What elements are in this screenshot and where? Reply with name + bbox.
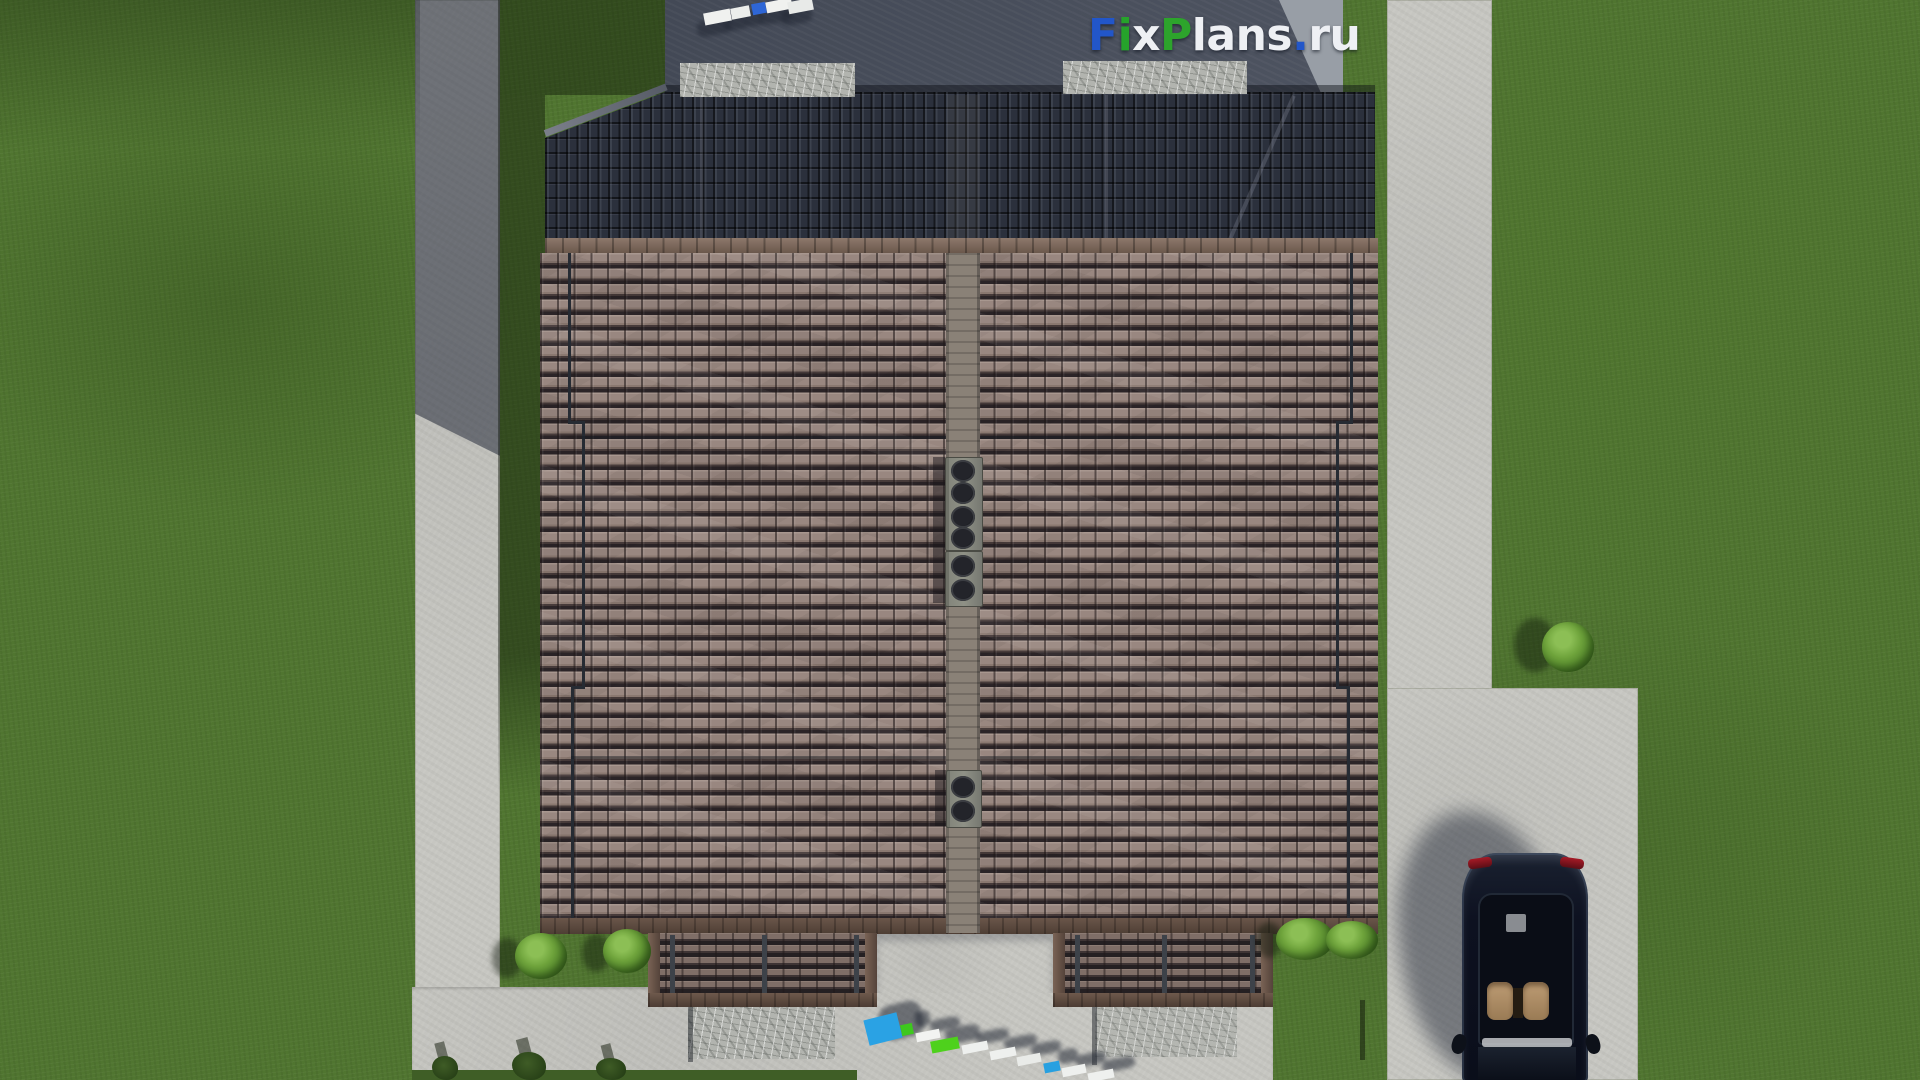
roof-vent-line-left [700, 95, 703, 238]
chimney-vent [951, 800, 975, 822]
chimney-shadow-1 [933, 457, 945, 603]
watermark-letter: x [1132, 10, 1160, 61]
watermark-letter: ru [1308, 10, 1360, 61]
porch-right-valley-2 [1162, 935, 1167, 993]
house-shadow-on-lawn [0, 0, 420, 150]
car-panoramic-roof [1478, 893, 1574, 1045]
bush [1326, 921, 1378, 959]
car-dashboard [1482, 1038, 1572, 1047]
house-shadow-strip-top [498, 0, 670, 95]
porch-right-fascia-b [1053, 993, 1273, 1007]
entrance-pad [877, 933, 1053, 993]
house-shadow-strip-left [498, 95, 545, 795]
porch-left-valley-3 [854, 935, 859, 993]
car-console [1506, 914, 1526, 932]
chimney-block [945, 457, 983, 551]
downspout-shadow-3 [1360, 1000, 1365, 1060]
watermark-letter: i [1118, 10, 1133, 61]
car-seat-gap [1513, 988, 1523, 1018]
chimney-vent [951, 776, 975, 798]
bush-small-dark [596, 1058, 626, 1080]
granite-step-left [688, 1007, 835, 1059]
bush-small-dark [432, 1056, 458, 1080]
bush-small-dark [512, 1052, 546, 1080]
grass-sliver-bottom [412, 1070, 857, 1080]
roof-vent-line-right [1105, 95, 1108, 238]
granite-step-right [1095, 1007, 1237, 1057]
granite-cap-right [1063, 61, 1247, 94]
porch-right-valley-1 [1075, 935, 1080, 993]
roof-guard-right-2 [1336, 424, 1339, 688]
watermark-letter: . [1292, 10, 1308, 61]
car-seat-left [1487, 982, 1513, 1020]
roof-guard-left-2 [582, 424, 585, 688]
porch-left-valley-1 [670, 935, 675, 993]
roof-guard-left-1 [568, 253, 571, 424]
watermark-letter: F [1088, 10, 1118, 61]
chimney-vent [951, 460, 975, 482]
chimney-shadow-2 [935, 770, 946, 826]
porch-left-fascia-b [648, 993, 877, 1007]
porch-right-valley-3 [1250, 935, 1255, 993]
chimney-vent [951, 527, 975, 549]
chimney-vent [951, 506, 975, 528]
chimney-block [946, 770, 982, 828]
roof-guard-right-3 [1347, 688, 1350, 918]
roof-guard-left-3 [571, 688, 574, 918]
path-right [1387, 0, 1492, 690]
car-seat-right [1523, 982, 1549, 1020]
chimney-vent [951, 482, 975, 504]
watermark: FixPlans.ru [1088, 10, 1338, 62]
roof-guard-right-1 [1350, 253, 1353, 424]
snow-rail-right-lower [980, 756, 1347, 759]
ridge-cap [545, 238, 1378, 253]
watermark-letter: lans [1192, 10, 1292, 61]
bush [515, 933, 567, 979]
car-windshield [1478, 1047, 1576, 1080]
chimney-block [945, 551, 983, 607]
snow-rail-left-lower [571, 756, 946, 759]
aerial-house-render: FixPlans.ru [0, 0, 1920, 1080]
porch-left-valley-2 [762, 935, 767, 993]
chimney-vent [951, 579, 975, 601]
bush [1542, 622, 1594, 672]
house-shadow-on-path [415, 0, 500, 470]
granite-cap-left [680, 63, 855, 97]
chimney-vent [951, 555, 975, 577]
bush [603, 929, 651, 973]
downspout-shadow-1 [688, 1007, 693, 1062]
party-wall-hint [947, 95, 980, 238]
watermark-letter: P [1160, 10, 1192, 61]
snow-rail-left-upper [582, 436, 946, 439]
snow-rail-right-upper [980, 436, 1336, 439]
